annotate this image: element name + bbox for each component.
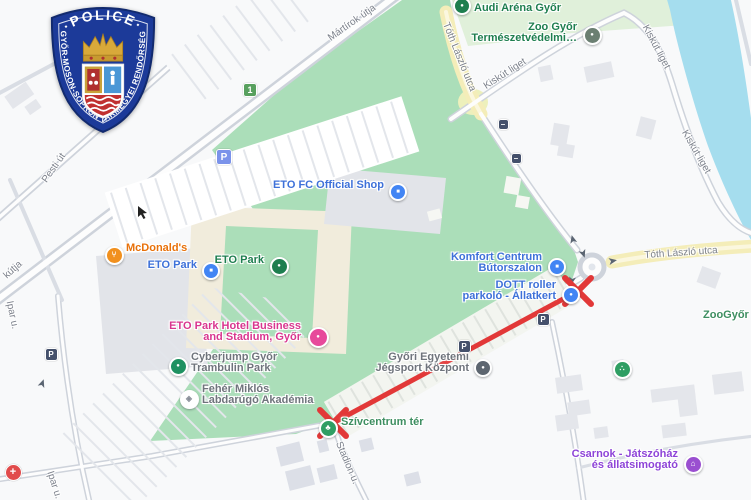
- szivcentrum-ter-icon: ♣: [321, 421, 336, 436]
- jegsport-kozpont-icon: ●: [476, 361, 490, 375]
- zoo-gyor-icon: ●: [585, 28, 600, 43]
- medical-poi[interactable]: +: [5, 464, 22, 481]
- dott-roller-marker[interactable]: ●: [562, 286, 580, 304]
- gate-2[interactable]: –: [511, 153, 522, 164]
- feher-miklos-akademia-icon: ◈: [182, 392, 197, 407]
- eto-park-green-icon: ●: [272, 259, 287, 274]
- dott-roller-icon: ●: [564, 288, 578, 302]
- gate-1[interactable]: –: [498, 119, 509, 130]
- csarnok-jatszohaz-marker[interactable]: ⌂: [684, 455, 703, 474]
- cyberjump-label[interactable]: Cyberjump GyőrTrambulin Park: [191, 352, 277, 373]
- komfort-centrum-marker[interactable]: ■: [548, 258, 566, 276]
- eto-park-mall-label[interactable]: ETO Park: [148, 260, 197, 271]
- dott-roller-label[interactable]: DOTT rollerparkoló - Állatkert: [462, 280, 556, 301]
- zoo-gyor-marker[interactable]: ●: [583, 26, 602, 45]
- parking-dark-3[interactable]: P: [45, 348, 58, 361]
- cyberjump-icon: ●: [171, 359, 186, 374]
- cyberjump-marker[interactable]: ●: [169, 357, 188, 376]
- eto-park-mall-icon: ■: [204, 264, 218, 278]
- feher-miklos-akademia-label[interactable]: Fehér MiklósLabdarúgó Akadémia: [202, 384, 313, 405]
- parking-dark-2[interactable]: P: [458, 340, 471, 353]
- paw-zoo-poi-icon: ∴: [615, 362, 630, 377]
- eto-park-green-label[interactable]: ETO Park: [215, 255, 264, 266]
- audi-arena-icon: ●: [455, 0, 469, 13]
- audi-arena-label[interactable]: Audi Aréna Győr: [474, 3, 561, 14]
- szivcentrum-ter-label[interactable]: Szívcentrum tér: [341, 417, 424, 428]
- paw-zoo-poi-marker[interactable]: ∴: [613, 360, 632, 379]
- komfort-centrum-icon: ■: [550, 260, 564, 274]
- szivcentrum-ter-marker[interactable]: ♣: [319, 419, 338, 438]
- audi-arena-marker[interactable]: ●: [453, 0, 471, 15]
- mcdonalds-label[interactable]: McDonald's: [126, 243, 187, 254]
- feher-miklos-akademia-marker[interactable]: ◈: [180, 390, 199, 409]
- mcdonalds-marker[interactable]: ⑂: [105, 246, 124, 265]
- parking-lot-icon[interactable]: P: [216, 149, 232, 165]
- map-screenshot: ●Audi Aréna Győr●Zoo GyőrTermészetvédelm…: [0, 0, 751, 500]
- eto-park-hotel-label[interactable]: ETO Park Hotel Businessand Stadium, Győr: [169, 321, 301, 342]
- komfort-centrum-label[interactable]: Komfort CentrumBútorszalon: [451, 252, 542, 273]
- mcdonalds-icon: ⑂: [107, 248, 122, 263]
- route-shield-1[interactable]: 1: [243, 83, 257, 97]
- eto-park-hotel-icon: ●: [310, 329, 327, 346]
- eto-fc-shop-building: [324, 168, 446, 234]
- zoo-gyor-label[interactable]: Zoo GyőrTermészetvédelmi…: [471, 22, 577, 43]
- jegsport-kozpont-marker[interactable]: ●: [474, 359, 492, 377]
- eto-fc-official-shop-marker[interactable]: ■: [389, 183, 407, 201]
- csarnok-jatszohaz-label[interactable]: Csarnok - Játszóházés állatsimogató: [572, 449, 678, 470]
- eto-fc-official-shop-label[interactable]: ETO FC Official Shop: [273, 180, 384, 191]
- csarnok-jatszohaz-icon: ⌂: [686, 457, 701, 472]
- eto-park-hotel-marker[interactable]: ●: [308, 327, 329, 348]
- eto-fc-official-shop-icon: ■: [391, 185, 405, 199]
- eto-park-green-marker[interactable]: ●: [270, 257, 289, 276]
- parking-dark-1[interactable]: P: [537, 313, 550, 326]
- zoogyor-area-label[interactable]: ZooGyőr: [703, 310, 749, 321]
- jegsport-kozpont-label[interactable]: Győri EgyetemiJégsport Központ: [376, 352, 470, 373]
